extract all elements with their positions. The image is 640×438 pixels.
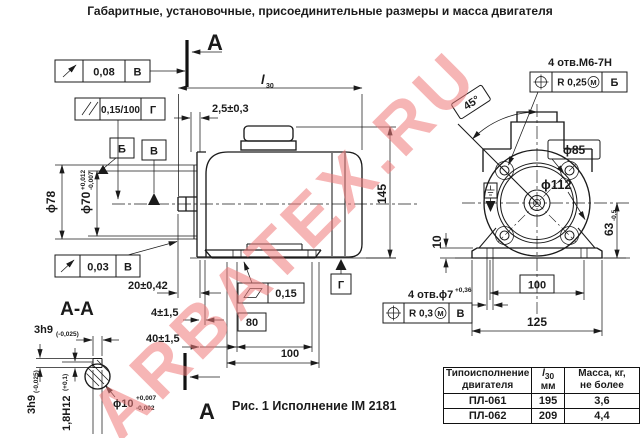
dim-base-len: 125 [527,315,547,329]
fcf-runout-bottom: 0,03 В [55,242,177,278]
svg-text:0,08: 0,08 [93,67,114,79]
svg-text:ϕ85: ϕ85 [563,143,586,157]
datum-flag-b: Б [98,138,135,174]
table-row: ПЛ-061 195 3,6 [444,393,640,408]
datum-triangle-icon [98,165,109,174]
datum-triangle-icon [336,259,347,270]
fcf-position-7: R 0,3 М В [383,303,472,323]
svg-text:В: В [457,308,465,320]
svg-text:(-0,025): (-0,025) [56,331,79,338]
dim-d78: ϕ78 [44,191,58,214]
svg-text:Б: Б [118,144,126,156]
svg-text:3h9: 3h9 [26,395,38,414]
dim-front-hole-span: 100 [528,280,546,292]
svg-text:М: М [437,309,443,318]
svg-text:М: М [590,78,596,87]
svg-text:0,03: 0,03 [87,262,108,274]
section-label-bottom: А [199,399,215,424]
svg-text:В: В [134,67,142,79]
terminal-box-front [511,112,564,149]
dim-d112: ϕ112 [541,177,585,220]
table-header-row: Типоисполнение двигателя l30 мм Масса, к… [444,368,640,394]
datum-flag-v: В [142,140,166,205]
svg-text:В: В [124,262,132,274]
dim-pad-h: 10 [430,235,444,249]
dim-foot-len-100: 100 [281,348,299,360]
fcf-runout-top: 0,08 В [55,60,185,82]
figure-caption: Рис. 1 Исполнение IM 2181 [232,399,396,413]
svg-text:4 отв.ϕ7: 4 отв.ϕ7 [408,289,453,301]
svg-text:Г: Г [150,105,157,117]
dim-shaft-len: 20±0,42 [128,280,168,292]
svg-text:R 0,25: R 0,25 [557,78,587,89]
dim-key-height: 1,8H12 (+0,1) [61,374,73,431]
svg-text:(-0,025): (-0,025) [33,370,40,393]
col-header-mass: Масса, кг, [578,368,625,379]
motor-data-table: Типоисполнение двигателя l30 мм Масса, к… [443,367,640,424]
svg-text:Б: Б [611,77,619,89]
svg-text:l: l [261,72,265,87]
section-cut-top: А [187,30,223,87]
dim-l30: l 30 [261,72,274,90]
dim-axis-h: 63 -0,5 [602,209,618,236]
drawing-page: Габаритные, установочные, присоединитель… [0,0,640,438]
svg-text:0,15/100: 0,15/100 [101,105,140,116]
svg-text:ϕ70: ϕ70 [79,191,93,214]
section-label-top: А [207,30,223,55]
label-foot-holes: 4 отв.ϕ7 +0,36 [408,287,472,301]
svg-text:+0,36: +0,36 [455,287,472,294]
svg-text:(+0,1): (+0,1) [62,374,69,391]
dim-key-width: 3h9 (-0,025) [34,324,79,338]
position-icon [534,75,549,90]
datum-triangle-icon [148,193,160,205]
dim-d70: ϕ70 +0,012 -0,007 [79,170,95,214]
terminal-box [241,126,296,150]
parallelism-icon [82,102,98,115]
45deg-arc [473,112,537,139]
col-header-type: Типоисполнение [446,368,529,379]
runout-icon [63,65,76,77]
dim-flange-gap: 2,5±0,3 [212,103,249,115]
svg-text:ϕ112: ϕ112 [541,177,572,192]
svg-text:1,8H12: 1,8H12 [61,396,73,431]
datum-flag-g: Г [331,259,351,294]
table-row: ПЛ-062 209 4,4 [444,408,640,423]
label-holes-m6: 4 отв.М6-7Н [548,57,612,69]
svg-text:+0,012: +0,012 [80,170,87,190]
front-endshield [197,152,206,257]
svg-text:Г: Г [338,280,345,292]
svg-text:-0,5: -0,5 [611,209,618,221]
svg-text:63: 63 [602,222,616,236]
svg-text:30: 30 [266,83,274,90]
runout-icon [61,260,74,272]
col-header-l30: l30 [542,368,554,379]
svg-text:В: В [150,146,158,158]
section-view-title: А-А [60,299,94,320]
svg-text:-0,007: -0,007 [88,171,95,190]
svg-text:R 0,3: R 0,3 [409,309,433,320]
position-icon [386,306,401,321]
dim-key-width-v: 3h9 (-0,025) [26,370,40,414]
svg-text:3h9: 3h9 [34,324,53,336]
